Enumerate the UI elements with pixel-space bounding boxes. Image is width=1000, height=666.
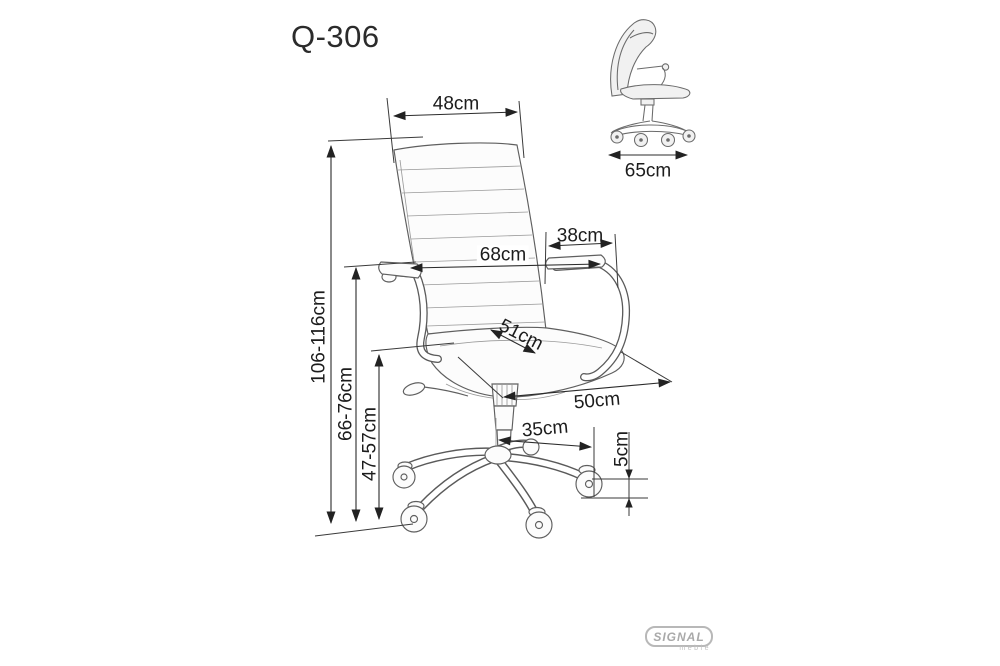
dim-label-total-height: 106-116cm bbox=[310, 290, 329, 384]
dim-label-seat-height: 47-57cm bbox=[361, 407, 380, 481]
dim-label-caster-height: 5cm bbox=[613, 431, 632, 467]
caster-back-left bbox=[393, 462, 415, 488]
base-star bbox=[393, 439, 602, 538]
side-view-chair-drawing bbox=[611, 20, 695, 147]
side-base bbox=[611, 121, 695, 147]
dim-arrow-5cm-top bbox=[625, 470, 632, 480]
caster-front-left bbox=[401, 502, 427, 533]
main-chair-drawing bbox=[379, 143, 626, 538]
caster-right bbox=[576, 466, 602, 498]
side-seat bbox=[621, 85, 690, 99]
dim-label-base-radius: 35cm bbox=[521, 418, 569, 441]
base-leg-front-left bbox=[421, 458, 494, 507]
dim-label-backrest-width: 48cm bbox=[433, 95, 479, 114]
signal-logo-brand: SIGNAL bbox=[653, 630, 704, 644]
dim-label-armrest-length: 38cm bbox=[557, 227, 603, 246]
dim-label-overall-width: 68cm bbox=[477, 246, 529, 265]
side-gas-lift bbox=[643, 105, 653, 121]
dim-label-armrest-height: 66-76cm bbox=[337, 367, 356, 441]
dim-arrow-5cm-bottom bbox=[625, 498, 632, 508]
dim-label-seat-depth: 50cm bbox=[573, 390, 621, 413]
caster-front-center bbox=[526, 508, 552, 539]
dim-label-side-depth: 65cm bbox=[625, 162, 671, 181]
base-leg-right bbox=[504, 457, 584, 477]
side-mechanism bbox=[641, 99, 654, 105]
base-leg-front-center bbox=[500, 462, 536, 515]
signal-logo-sub: meble bbox=[645, 645, 711, 652]
diagram-canvas: Q-306 bbox=[0, 0, 1000, 666]
signal-logo: SIGNAL bbox=[645, 626, 713, 647]
floor-line bbox=[315, 524, 413, 536]
base-hub bbox=[485, 446, 511, 464]
